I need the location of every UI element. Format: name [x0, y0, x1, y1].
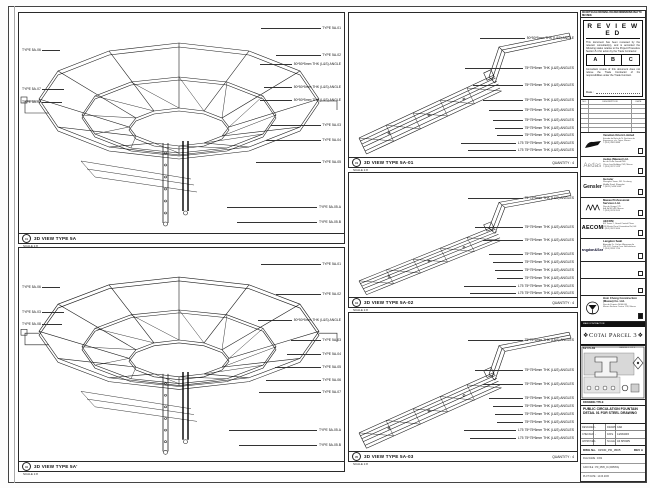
consultant-row-aecom: AECOM AECOM 8/F Tower 2, Grand Central P…: [581, 219, 645, 239]
banner-ornament-icon: ❖: [638, 332, 643, 339]
leader-label: 75*75*6mm THK (L&S) ANGLES: [468, 197, 574, 200]
panel-3d-view-type-5a-02: 75*75*6mm THK (L&S) ANGLES 75*75*6mm THK…: [348, 172, 578, 308]
field-label: SCALE: [606, 439, 616, 445]
leader-label: 75*75*6mm THK (L&S) ANGLES: [493, 119, 574, 122]
leader-label: TYPE 5A-05.B: [237, 221, 341, 224]
leader-label: TYPE 5A-04: [266, 139, 341, 142]
hsin-chong-circle-logo: [582, 297, 603, 320]
leader-label: TYPE 5A-01: [261, 27, 341, 30]
leader-label: 50*50*5mm THK (L&S) ANGLE: [264, 86, 341, 89]
view-title-bar: 02 3D VIEW TYPE 5A': [19, 461, 344, 471]
panel-3d-view-type-5a-01: 50*50*5mm THK (L&S) ANGLE 75*75*6mm THK …: [348, 12, 578, 168]
leader-label: TYPE 5A-03: [271, 124, 341, 127]
leader-label: 75*75*6mm THK (L&S) ANGLES: [465, 67, 574, 70]
consultant-address: Shanghai Tower, 501 Yincheng Middle Road…: [603, 181, 644, 188]
leader-label: L75 75*75*6mm THK (L&S) ANGLES: [470, 437, 574, 440]
leader-label: 50*50*5mm THK (L&S) ANGLE: [260, 63, 341, 66]
leader-label: TYPE 5A-06: [22, 286, 60, 289]
leader-label: 75*75*6mm THK (L&S) ANGLES: [495, 127, 574, 130]
banner-ornament-icon: ❖: [583, 332, 588, 339]
rev-value: A: [641, 448, 643, 452]
footer-row: FILE NAME : 0152: [581, 455, 645, 464]
approval-checkbox: [638, 168, 644, 174]
key-plan-parcel-label: PARCEL 1 OF 3: [619, 347, 635, 349]
dwg-number-value: 01530_PD_0505: [598, 448, 621, 452]
stamp-date-row: Date :: [586, 90, 640, 95]
leader-label: 75*75*6mm THK (L&S) ANGLES: [483, 383, 574, 386]
field-value: -: [594, 439, 606, 445]
leader-label: 75*75*6mm THK (L&S) ANGLES: [497, 277, 574, 280]
consultant-row-empty: [581, 279, 645, 296]
langdon-seah-wordmark-logo: Langdon&Seah: [582, 248, 603, 252]
leader-label: TYPE 5A-05.A: [229, 429, 341, 432]
view-scale: SCALE 1:8: [23, 472, 38, 476]
consultant-name: Macau Professional Services Ltd.: [603, 199, 644, 205]
project-banner: ❖ Cotai Parcel 3 ❖: [581, 326, 645, 346]
consultant-row-gensler: Gensler Gensler Shanghai Tower, 501 Yinc…: [581, 177, 645, 198]
leader-label: 75*75*6mm THK (L&S) ANGLES: [493, 405, 574, 408]
date-fill-line: [596, 90, 640, 94]
leader-label: 75*75*6mm THK (L&S) ANGLES: [473, 84, 574, 87]
key-plan-caption: KEY PLAN: [583, 347, 595, 350]
approval-checkbox: [638, 230, 644, 236]
approval-checkbox: [638, 189, 644, 195]
leader-label: 50*50*5mm THK (L&S) ANGLE: [260, 99, 341, 102]
dwg-number-label: DWG No.: [583, 448, 596, 452]
leader-label: 75*75*6mm THK (L&S) ANGLES: [475, 369, 574, 372]
status-option-c: C: [622, 55, 639, 65]
view-scale: SCALE 1:8: [353, 462, 368, 466]
view-title: 3D VIEW TYPE 5A-02: [364, 300, 414, 305]
field-label: DATE: [606, 431, 616, 437]
leader-label: TYPE 5A-02: [276, 293, 341, 296]
revision-table: NO. DESCRIPTION DATE: [581, 100, 645, 133]
signoff-fields: DESIGNED - DRAWN CAD CHECKED - DATE 14/0…: [581, 424, 645, 446]
view-number-circle: 02: [22, 462, 31, 471]
view-title-bar: 05 3D VIEW TYPE 5A-03 QUANTITY : 4: [349, 451, 577, 461]
leader-label: 75*75*6mm THK (L&S) ANGLES: [468, 339, 574, 342]
approval-checkbox: [638, 271, 644, 277]
view-title-bar: 03 3D VIEW TYPE 5A-01 QUANTITY : 4: [349, 157, 577, 167]
consultant-row-mps: ⋀⋀⋀ Macau Professional Services Ltd. Rua…: [581, 198, 645, 219]
revision-col-date: DATE: [632, 100, 645, 104]
leader-label: L75 75*75*6mm THK (L&S) ANGLES: [461, 142, 574, 145]
approval-checkbox: [638, 148, 644, 154]
venetian-flag-logo: [582, 134, 603, 155]
contractor-row-hsin-chong: Hsin Chong Construction (Macau) Co. Ltd.…: [581, 296, 645, 322]
venetian-flag-logo: [584, 140, 602, 149]
consultant-row-langdon-seah: Langdon&Seah Langdon Seah Alameda Dr. Ca…: [581, 239, 645, 262]
field-value: CAD: [616, 424, 645, 430]
leader-label: TYPE 5A-01: [261, 263, 341, 266]
title-block: DO NOT SCALE DRAWING. FIGURED DIMENSIONS…: [580, 10, 646, 482]
approval-checkbox: [638, 313, 644, 319]
aecom-wordmark-logo: AECOM: [582, 225, 603, 231]
revision-col-description: DESCRIPTION: [589, 100, 632, 104]
consultant-address: Estrada da Baía de N. Senhora da Esperan…: [603, 138, 644, 145]
view-number-circle: 04: [352, 298, 361, 307]
view-title: 3D VIEW TYPE 5A': [34, 464, 78, 469]
leader-label: TYPE 5A-02: [276, 54, 341, 57]
leader-label: TYPE 5A-03: [291, 339, 341, 342]
approval-checkbox: [638, 288, 644, 294]
leader-label: 75*75*6mm THK (L&S) ANGLES: [495, 269, 574, 272]
key-plan: KEY PLAN PARCEL 1 OF 3: [581, 346, 645, 400]
hsin-chong-circle-logo: [585, 301, 601, 316]
view-title: 3D VIEW TYPE 5A-01: [364, 160, 414, 165]
footer-row: PLOT DATE : 14.03.2015: [581, 473, 645, 481]
view-number-circle: 01: [22, 234, 31, 243]
field-row: CHECKED - DATE 14/03/2015: [581, 431, 645, 438]
view-quantity: QUANTITY : 4: [552, 455, 574, 459]
field-value: 14/03/2015: [616, 431, 645, 437]
field-label: DRAWN: [606, 424, 616, 430]
date-label: Date :: [586, 90, 594, 94]
leader-label: 75*75*6mm THK (L&S) ANGLES: [475, 226, 574, 229]
aedas-wordmark-logo: Aedas: [583, 163, 601, 169]
leader-label: TYPE 5A-03: [22, 311, 64, 314]
field-label: DESIGNED: [581, 424, 594, 430]
leader-label: 75*75*6mm THK (L&S) ANGLES: [493, 261, 574, 264]
leader-label: TYPE 5A-07: [259, 391, 341, 394]
revision-col-no: NO.: [581, 100, 589, 104]
leader-label: TYPE 5A-07: [22, 88, 64, 91]
leader-label: TYPE 5A-06: [22, 49, 60, 52]
leader-label: TYPE 5A-06: [266, 379, 341, 382]
leader-label: TYPE 5A-05.B: [239, 444, 341, 447]
field-row: APPROVED - SCALE AS SHOWN: [581, 439, 645, 445]
contractor-address: Rua de Pequim 202A-246 Macau Finance Cen…: [603, 304, 644, 309]
field-value: -: [594, 424, 606, 430]
approval-checkbox: [638, 253, 644, 259]
leader-label: L75 75*75*6mm THK (L&S) ANGLES: [468, 149, 574, 152]
mps-logo: ⋀⋀⋀: [586, 204, 599, 211]
leader-label: L75 75*75*6mm THK (L&S) ANGLES: [464, 429, 574, 432]
rev-label: REV: [634, 448, 640, 452]
view-quantity: QUANTITY : 4: [552, 301, 574, 305]
drawing-title: PUBLIC CIRCULATION FOUNTAIN DETAIL 01 FO…: [581, 406, 645, 424]
field-label: CHECKED: [581, 431, 594, 437]
reviewed-stamp-note: Consultant review of this document does …: [586, 68, 640, 77]
consultant-row-venetian: Venetian Orient Limited Estrada da Baía …: [581, 133, 645, 157]
leader-label: 75*75*6mm THK (L&S) ANGLES: [483, 239, 574, 242]
leader-label: 75*75*6mm THK (L&S) ANGLES: [483, 99, 574, 102]
leader-label: TYPE 5A-05: [256, 161, 341, 164]
view-title: 3D VIEW TYPE 5A: [34, 236, 76, 241]
view-quantity: QUANTITY : 4: [552, 161, 574, 165]
revision-row: [581, 128, 645, 132]
leader-label: TYPE 5A-02: [22, 101, 62, 104]
leader-label: L75 75*75*6mm THK (L&S) ANGLES: [470, 292, 574, 295]
leader-label: 50*50*5mm THK (L&S) ANGLE: [480, 37, 574, 40]
gensler-wordmark-logo: Gensler: [583, 184, 602, 190]
status-option-a: A: [587, 55, 605, 65]
leader-label: 75*75*6mm THK (L&S) ANGLES: [497, 421, 574, 424]
status-option-cells: A B C: [586, 54, 640, 66]
dwg-number-row: DWG No. 01530_PD_0505 REV A: [581, 446, 645, 455]
project-name: Cotai Parcel 3: [589, 332, 637, 339]
leader-label: TYPE 5A-05.A: [227, 206, 341, 209]
key-plan-map: [581, 346, 645, 399]
view-title-bar: 04 3D VIEW TYPE 5A-02 QUANTITY : 4: [349, 297, 577, 307]
binding-margin-line: [14, 6, 15, 483]
leader-label: L75 75*75*6mm THK (L&S) ANGLES: [464, 285, 574, 288]
consultant-row-aedas: Aedas Aedas (Macau) Ltd. Av. da Praia Gr…: [581, 157, 645, 177]
field-label: APPROVED: [581, 439, 594, 445]
approval-checkbox: [638, 210, 644, 216]
field-row: DESIGNED - DRAWN CAD: [581, 424, 645, 431]
consultant-address: Alameda Dr. Carlos d'Assumpção 181-187, …: [603, 244, 644, 251]
view-title-bar: 01 3D VIEW TYPE 5A: [19, 233, 344, 243]
view-number-circle: 05: [352, 452, 361, 461]
status-option-b: B: [605, 55, 623, 65]
reviewed-stamp: R E V I E W E D This document has been r…: [581, 18, 645, 100]
leader-label: TYPE 5A-04: [287, 353, 341, 356]
leader-label: 75*75*6mm THK (L&S) ANGLES: [497, 134, 574, 137]
panel-3d-view-type-5a-alt: TYPE 5A-01 TYPE 5A-02 50*50*5mm THK (L&S…: [18, 247, 345, 472]
footer-row: CAD FILE : PD_0505_01 (R0505A): [581, 464, 645, 473]
contractor-name: Hsin Chong Construction (Macau) Co. Ltd.: [603, 297, 644, 303]
leader-label: 75*75*6mm THK (L&S) ANGLES: [489, 397, 574, 400]
panel-3d-view-type-5a: TYPE 5A-01 TYPE 5A-02 50*50*5mm THK (L&S…: [18, 12, 345, 244]
notice-line: DO NOT SCALE DRAWING. FIGURED DIMENSIONS…: [581, 11, 645, 18]
leader-label: 75*75*6mm THK (L&S) ANGLES: [495, 413, 574, 416]
view-number-circle: 03: [352, 158, 361, 167]
leader-label: TYPE 5A-08: [22, 323, 62, 326]
leader-label: 50*50*5mm THK (L&S) ANGLE: [258, 319, 341, 322]
field-value: -: [594, 431, 606, 437]
reviewed-stamp-text: This document has been reviewed by the r…: [586, 41, 640, 53]
view-title: 3D VIEW TYPE 5A-03: [364, 454, 414, 459]
field-value: AS SHOWN: [616, 439, 645, 445]
leader-label: 75*75*6mm THK (L&S) ANGLES: [489, 253, 574, 256]
leader-label: TYPE 5A-05: [275, 366, 341, 369]
panel-3d-view-type-5a-03: 75*75*6mm THK (L&S) ANGLES 75*75*6mm THK…: [348, 312, 578, 462]
leader-label: 75*75*6mm THK (L&S) ANGLES: [489, 109, 574, 112]
reviewed-stamp-title: R E V I E W E D: [586, 22, 640, 39]
consultant-row-empty: [581, 262, 645, 279]
